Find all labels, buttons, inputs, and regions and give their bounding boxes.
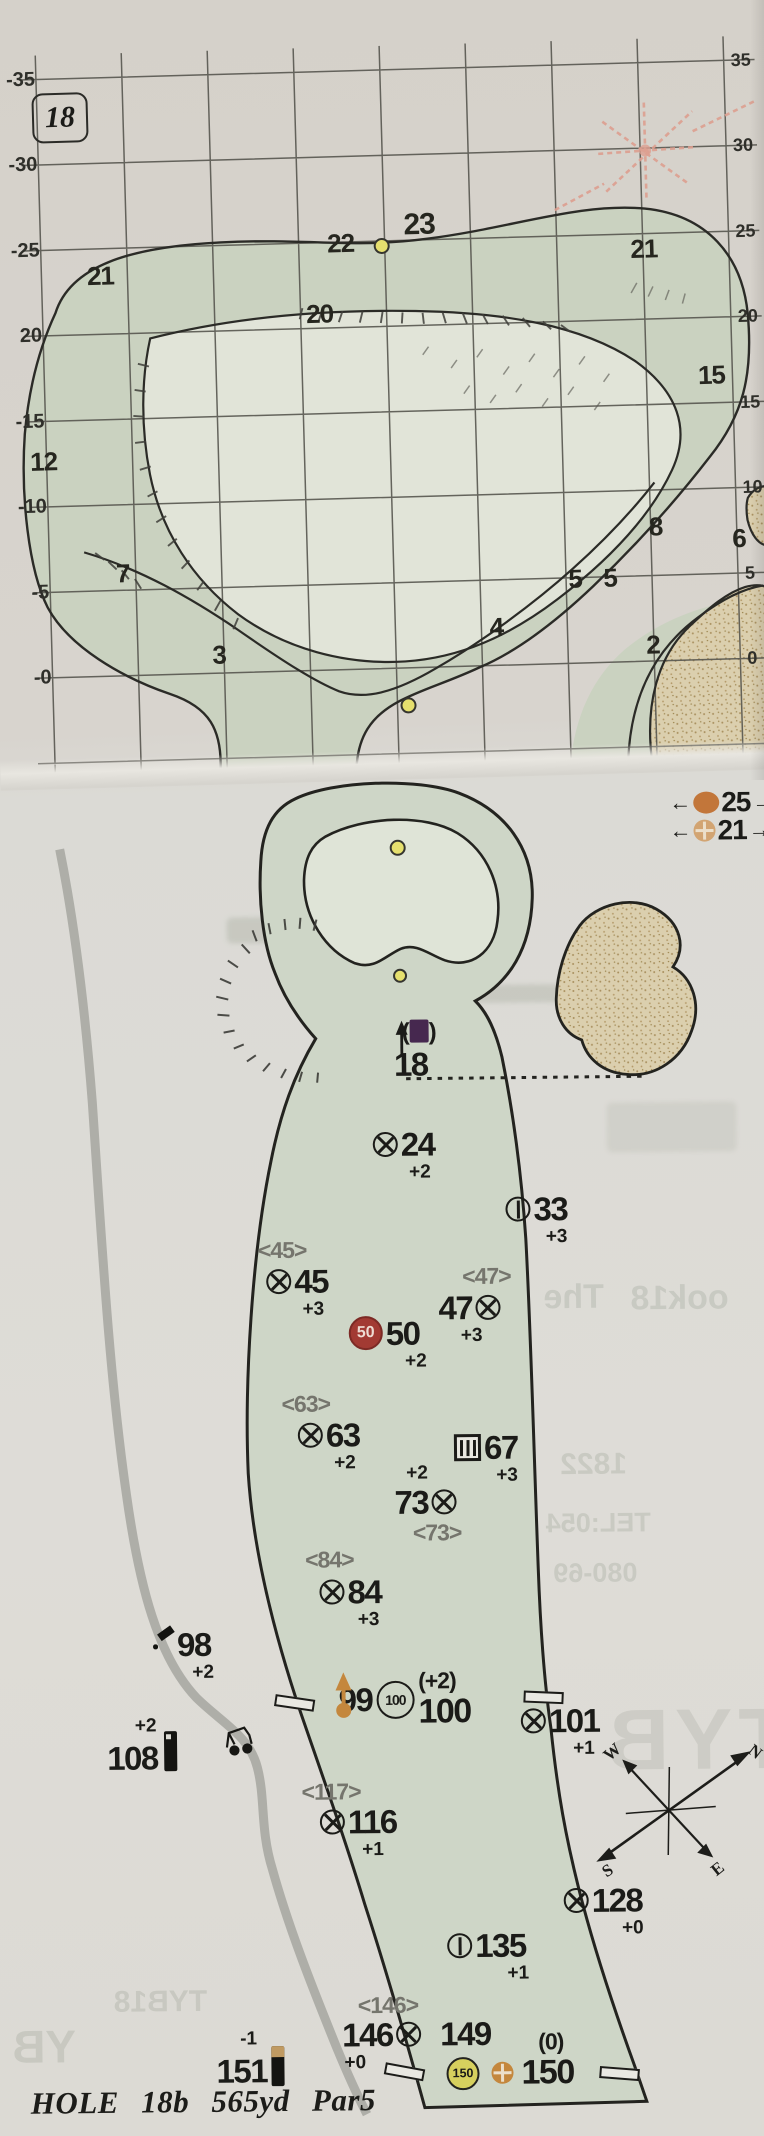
yardage-marker: 98 +2	[144, 1628, 214, 1683]
yardage-value: 84	[347, 1575, 381, 1608]
green-target-marker: () 18	[393, 1019, 437, 1080]
yardage-value: 63	[326, 1418, 360, 1451]
up-arrow-icon	[393, 1020, 409, 1056]
slope-delta: +2	[334, 1453, 360, 1472]
yardage-marker: 24 +2	[373, 1127, 435, 1182]
rough-mark-icon	[152, 1627, 174, 1651]
yardage-marker-100: 99 100 (+2) 100	[332, 1669, 471, 1729]
orange-cross-disc-icon	[693, 819, 715, 841]
golf-cart	[219, 1723, 261, 1757]
yardage-marker: 101 +1	[503, 1704, 600, 1759]
yardage-book-photo: 18 -35 -30 -25 20 -15 -10 -5 -0 35 30 25…	[0, 0, 764, 2136]
yardage-value: 24	[401, 1127, 435, 1160]
slope-delta: +1	[507, 1963, 529, 1982]
right-arrow-icon: →	[749, 819, 764, 841]
yardage-marker: 33 +3	[505, 1192, 567, 1247]
purple-square-icon	[409, 1019, 428, 1042]
legend-value: 21	[717, 814, 746, 846]
sprinkler-circle-x-icon	[564, 1888, 589, 1913]
yardage-value: 73	[394, 1486, 428, 1519]
yardage-marker: 135 +1	[429, 1928, 529, 1983]
sprinkler-circle-x-icon	[521, 1708, 546, 1733]
slope-delta: +3	[302, 1300, 328, 1319]
yardage-marker: 128 +0	[550, 1883, 644, 1938]
greenside-bunker	[555, 902, 696, 1076]
distance-post-icon	[163, 1731, 176, 1771]
slope-delta: +2	[406, 1463, 461, 1483]
slope-delta: +0	[622, 1918, 644, 1937]
slope-delta: +2	[409, 1162, 435, 1181]
slope-delta: +3	[546, 1227, 568, 1246]
yardage-marker: <117> 116 +1	[295, 1780, 397, 1860]
alt-distance: <84>	[305, 1548, 381, 1572]
alt-distance: <73>	[413, 1521, 462, 1545]
yardage-value: 128	[592, 1883, 643, 1917]
yardage-marker: 5050 +2	[349, 1316, 427, 1372]
red-50-disc-icon: 50	[349, 1316, 383, 1350]
left-arrow-icon: ←	[669, 792, 691, 814]
yardage-value-bold: 150	[521, 2055, 574, 2090]
drain-grate-icon	[454, 1434, 481, 1461]
yardage-value: 45	[294, 1265, 328, 1298]
circled-100-icon: 100	[376, 1680, 414, 1718]
alt-distance: (0)	[538, 2030, 573, 2053]
yellow-dot	[391, 841, 405, 855]
yardage-marker-150: (0) 150 150	[446, 2030, 574, 2090]
sprinkler-circle-x-icon	[320, 1809, 345, 1834]
yardage-marker: <84> 84 +3	[297, 1548, 382, 1630]
yardage-value: 47	[438, 1291, 472, 1324]
slope-delta: +1	[362, 1840, 397, 1859]
yardage-marker: <63> 63 +2	[273, 1392, 360, 1473]
yardage-marker: <45> 45 +3	[250, 1239, 329, 1320]
compass-e: E	[707, 1858, 728, 1880]
compass-n: N	[745, 1740, 764, 1763]
yardage-value: 101	[549, 1704, 600, 1738]
slope-delta: +3	[358, 1610, 382, 1629]
edge-crossbar	[523, 1690, 563, 1704]
sprinkler-circle-bar-icon	[505, 1196, 530, 1221]
hole-layout-map: 1822 TEL:054 080-69 The ook18 TYB http:/…	[0, 0, 764, 2136]
yardage-marker: <146> 146 +0	[308, 1994, 421, 2073]
sprinkler-circle-x-icon	[431, 1489, 456, 1514]
alt-distance: <117>	[301, 1780, 396, 1804]
slope-delta: +2	[192, 1663, 214, 1682]
yardage-value: 146	[342, 2018, 393, 2052]
yardage-value: 116	[348, 1805, 397, 1839]
alt-distance: <146>	[358, 1994, 421, 2018]
yardage-value: 67	[484, 1431, 518, 1464]
yardage-marker: +2 73 <73>	[382, 1463, 461, 1545]
alt-distance: <45>	[258, 1239, 328, 1263]
sprinkler-circle-x-icon	[396, 2022, 421, 2047]
compass-s: S	[598, 1860, 616, 1881]
right-arrow-icon: →	[752, 791, 764, 813]
yardage-value: 33	[533, 1192, 567, 1225]
left-arrow-icon: ←	[669, 820, 691, 842]
green-depth-legend-row: ← 21 →	[669, 814, 764, 847]
yardage-value: 50	[386, 1316, 420, 1349]
slope-delta: +3	[461, 1326, 512, 1346]
hole-info-footer: HOLE 18b 565yd Par5	[31, 2082, 376, 2122]
golf-cart-icon	[217, 1721, 264, 1761]
sprinkler-circle-bar-icon	[447, 1933, 472, 1958]
yellow-dot	[394, 970, 406, 982]
yardage-value: 98	[177, 1628, 211, 1661]
alt-distance: (+2)	[418, 1669, 470, 1693]
slope-delta: +2	[405, 1352, 427, 1371]
yardage-value: 135	[475, 1929, 526, 1963]
distance-post-icon	[271, 2046, 284, 2086]
orange-solid-disc-icon	[693, 791, 719, 813]
yellow-150-disc-icon: 150	[446, 2057, 479, 2090]
sprinkler-circle-x-icon	[373, 1132, 398, 1157]
yardage-marker: -1 151	[204, 2029, 284, 2091]
yardage-marker: +2 108	[95, 1716, 177, 1778]
yardage-value: 108	[107, 1741, 158, 1775]
orange-arrow-icon	[332, 1670, 355, 1718]
alt-distance: <63>	[281, 1392, 359, 1416]
slope-delta: +3	[496, 1466, 518, 1485]
yardage-marker: <47> 47 +3	[424, 1265, 511, 1346]
sprinkler-circle-x-icon	[266, 1269, 291, 1294]
compass-rose: N W S E	[595, 1738, 764, 1882]
yardage-value-bold: 100	[418, 1694, 471, 1729]
yardage-value: 151	[216, 2054, 267, 2088]
orange-cross-disc-icon	[491, 2062, 513, 2084]
sprinkler-circle-x-icon	[298, 1423, 323, 1448]
sprinkler-circle-x-icon	[475, 1295, 500, 1320]
alt-distance: <47>	[462, 1265, 511, 1289]
slope-delta: +1	[573, 1739, 600, 1758]
sprinkler-circle-x-icon	[319, 1579, 344, 1604]
compass-w: W	[600, 1739, 625, 1764]
